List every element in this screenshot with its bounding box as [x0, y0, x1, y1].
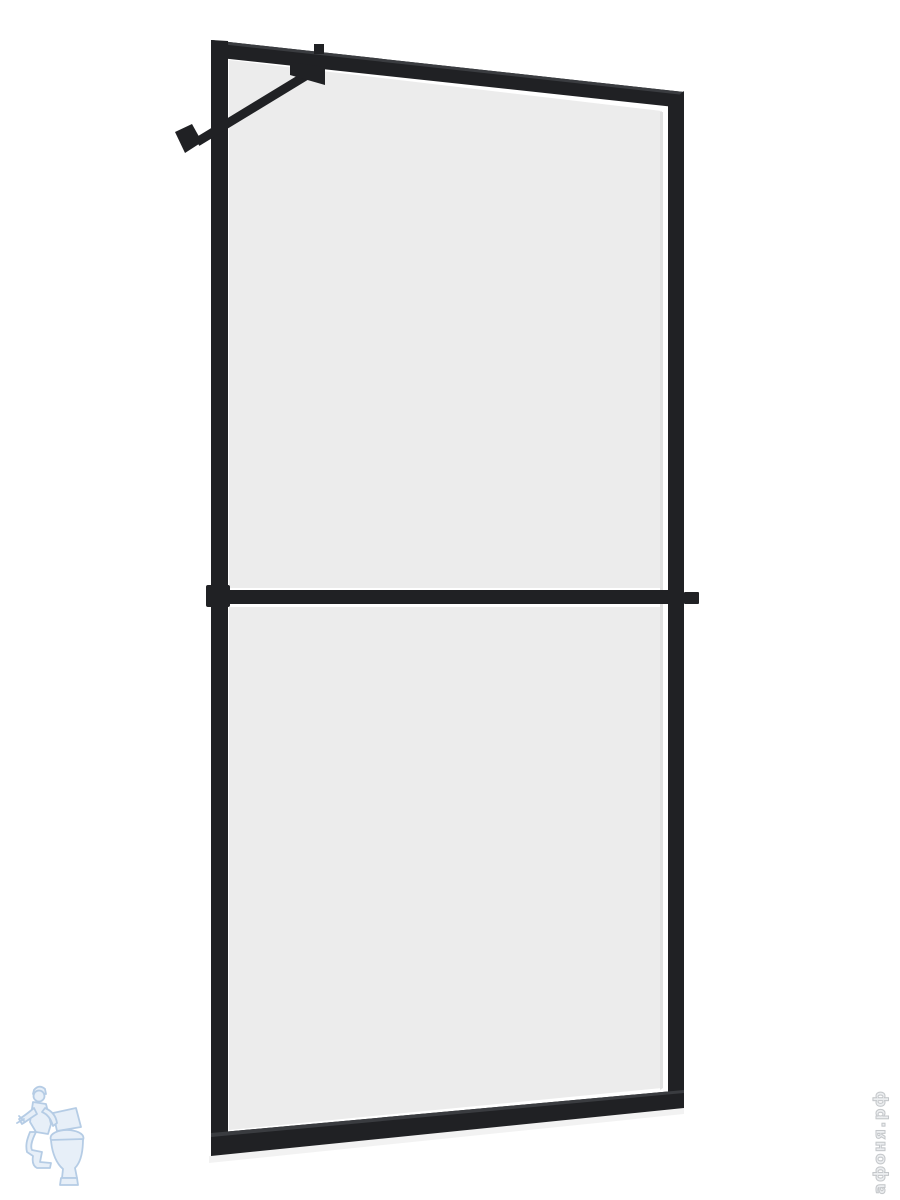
upper-glass-panel	[229, 60, 662, 588]
toilet-tank	[53, 1108, 81, 1131]
toilet-bowl	[51, 1139, 83, 1178]
plumber-legs	[26, 1132, 51, 1168]
product-photo: афоня.рф	[0, 0, 900, 1200]
shower-screen-image	[0, 0, 900, 1200]
support-bar-wall-cap	[175, 124, 202, 153]
plumber-torso	[30, 1102, 51, 1134]
crossbar-right-wall-bracket	[684, 592, 699, 604]
middle-crossbar	[214, 590, 684, 604]
site-watermark: афоня.рф	[869, 1082, 891, 1200]
support-bar-top-tab	[314, 44, 324, 54]
crossbar-left-connector	[206, 585, 230, 607]
toilet-base	[60, 1178, 78, 1185]
plumber-toilet-logo-icon	[15, 1082, 91, 1200]
plumber-head	[34, 1091, 45, 1102]
lower-glass-panel	[229, 607, 662, 1130]
